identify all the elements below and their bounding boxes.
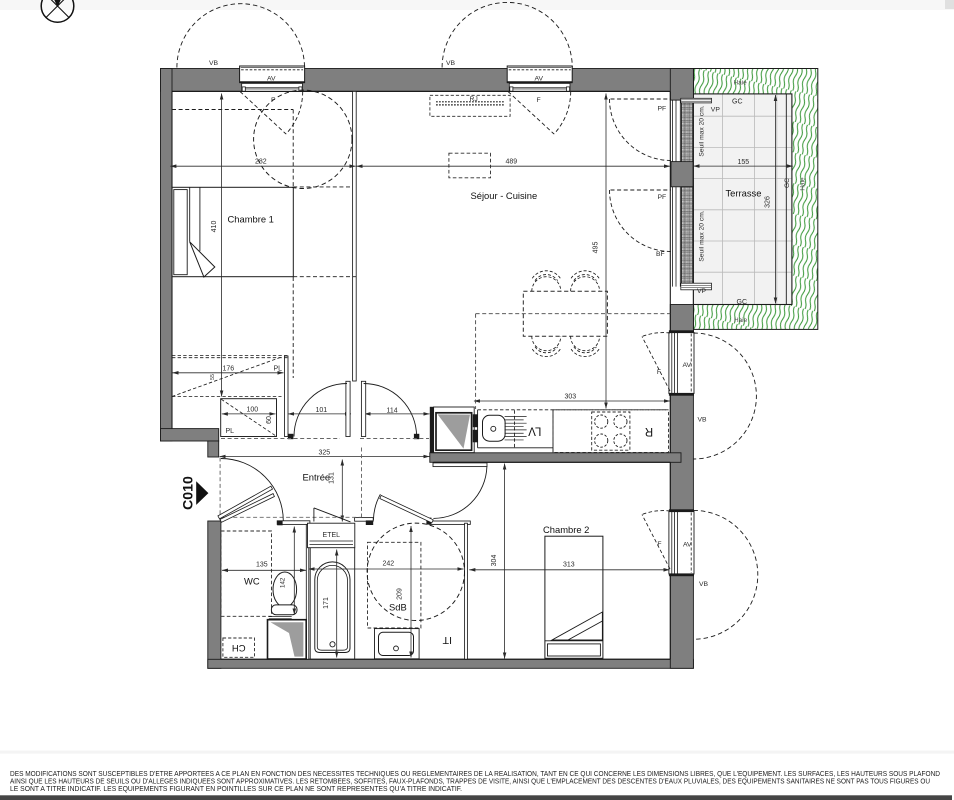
svg-text:142: 142 [280, 577, 287, 588]
svg-text:VB: VB [698, 416, 708, 423]
svg-text:55: 55 [210, 374, 216, 380]
svg-text:WC: WC [244, 576, 260, 587]
svg-text:Haie: Haie [734, 80, 748, 87]
svg-text:VB: VB [446, 60, 456, 67]
svg-text:176: 176 [223, 366, 235, 373]
svg-text:LV: LV [528, 425, 542, 437]
svg-text:AV: AV [267, 76, 276, 83]
svg-text:410: 410 [211, 221, 218, 233]
svg-text:Terrasse: Terrasse [726, 188, 762, 199]
svg-text:Entrée: Entrée [303, 472, 331, 483]
svg-text:GC: GC [784, 178, 791, 188]
svg-text:Seuil max 20 cm.: Seuil max 20 cm. [699, 210, 706, 261]
svg-text:GC: GC [737, 299, 748, 306]
svg-text:VB: VB [699, 581, 709, 588]
svg-text:F: F [657, 541, 661, 548]
svg-text:114: 114 [387, 408, 398, 415]
svg-text:ETEL: ETEL [323, 532, 341, 539]
svg-text:LE SONT A TITRE INDICATIF. LES: LE SONT A TITRE INDICATIF. LES EQUIPEMEN… [10, 786, 462, 793]
svg-text:AV: AV [683, 362, 692, 369]
svg-text:100: 100 [247, 407, 259, 414]
svg-text:155: 155 [738, 159, 750, 166]
svg-text:VP: VP [697, 288, 707, 295]
svg-text:303: 303 [565, 393, 577, 400]
svg-text:Haie: Haie [800, 177, 807, 191]
svg-text:SdB: SdB [389, 602, 407, 613]
svg-text:VB: VB [209, 60, 219, 67]
svg-text:326: 326 [765, 196, 772, 208]
svg-text:313: 313 [563, 561, 575, 568]
svg-text:DES MODIFICATIONS SONT SUSCEPT: DES MODIFICATIONS SONT SUSCEPTIBLES D'ET… [10, 771, 940, 778]
svg-text:AINSI QUE LES HAUTEURS DE SEUI: AINSI QUE LES HAUTEURS DE SEUILS OU D'AL… [10, 778, 930, 785]
svg-text:304: 304 [491, 555, 498, 567]
svg-text:BF: BF [656, 251, 665, 258]
svg-text:IT: IT [442, 634, 452, 646]
svg-text:242: 242 [383, 560, 395, 567]
svg-text:Chambre 2: Chambre 2 [543, 524, 589, 535]
svg-text:Haie: Haie [734, 317, 748, 324]
svg-text:209: 209 [397, 588, 404, 600]
svg-text:RJ: RJ [470, 96, 478, 103]
svg-text:PL: PL [274, 366, 283, 373]
svg-text:Séjour - Cuisine: Séjour - Cuisine [471, 190, 538, 201]
svg-text:Chambre 1: Chambre 1 [228, 214, 274, 225]
svg-text:GC: GC [732, 99, 743, 106]
svg-text:325: 325 [319, 449, 331, 456]
svg-text:AV: AV [535, 76, 544, 83]
svg-text:131: 131 [329, 472, 336, 484]
svg-text:R: R [645, 425, 653, 437]
svg-text:AV: AV [683, 541, 692, 548]
svg-text:Seuil max 20 cm.: Seuil max 20 cm. [699, 105, 706, 156]
svg-text:495: 495 [593, 242, 600, 254]
svg-text:CH: CH [232, 642, 246, 653]
svg-text:PL: PL [226, 428, 235, 435]
svg-text:PF: PF [658, 105, 667, 112]
svg-text:489: 489 [506, 158, 518, 165]
svg-text:171: 171 [323, 597, 330, 609]
svg-text:60: 60 [266, 416, 273, 424]
svg-text:VP: VP [711, 107, 721, 114]
svg-text:PF: PF [658, 194, 667, 201]
svg-text:C010: C010 [181, 476, 197, 510]
svg-text:F: F [537, 97, 541, 104]
svg-text:101: 101 [316, 407, 328, 414]
svg-text:135: 135 [256, 562, 268, 569]
svg-text:282: 282 [255, 158, 267, 165]
